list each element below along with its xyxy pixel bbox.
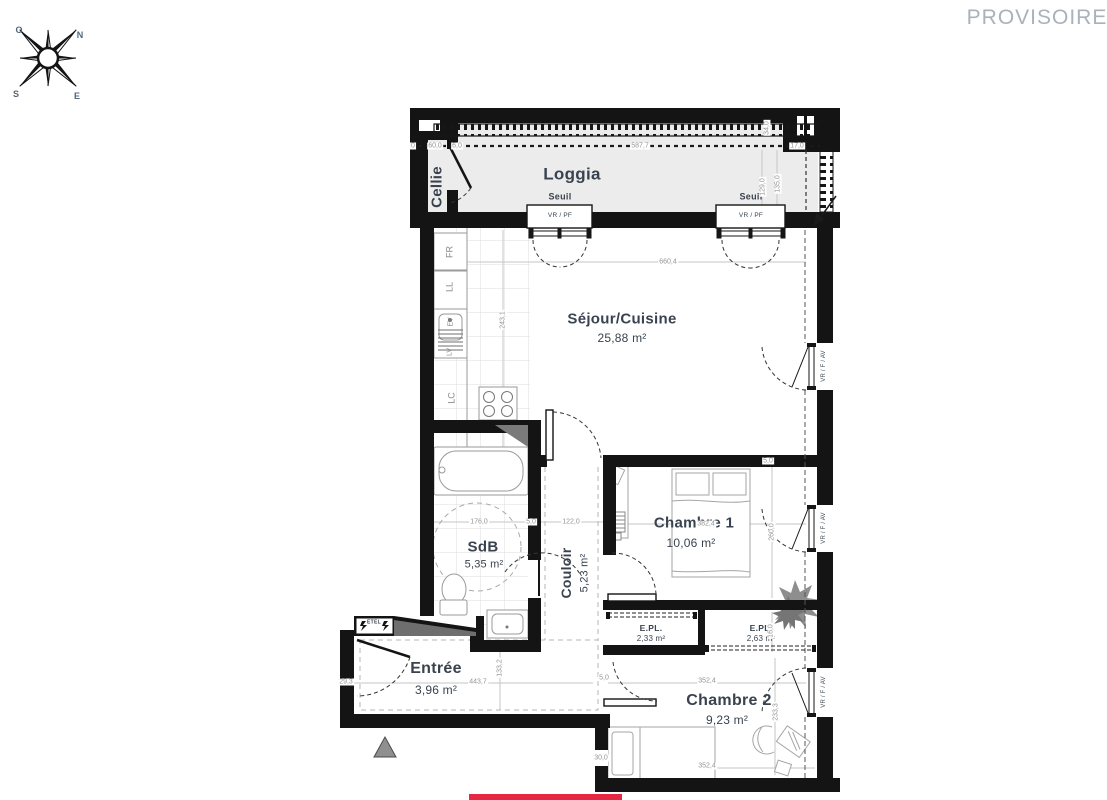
compass-label-east: E — [74, 91, 80, 101]
room-area-sejour: 25,88 m² — [598, 332, 647, 344]
room-name-cellier: Cellie — [430, 166, 445, 208]
dim-label: 0 — [410, 143, 416, 150]
vr-f-av-label-2: VR / F / AV — [821, 512, 827, 543]
floor-plan-drawing — [0, 0, 1107, 800]
dim-label: 135,0 — [775, 174, 782, 194]
dim-label: 260,0 — [769, 522, 776, 542]
sink-label: EV — [448, 316, 455, 327]
compass-label-north: N — [77, 30, 84, 40]
room-area-couloir: 5,23 m² — [580, 554, 591, 593]
room-name-couloir: Couloir — [559, 547, 573, 598]
bedroom2-furniture — [608, 726, 810, 780]
fridge-label: FR — [446, 245, 455, 259]
dim-label: 29,3 — [338, 679, 354, 686]
vr-pf-label-2: VR / PF — [739, 213, 763, 220]
room-area-placard1: 2,33 m² — [637, 635, 666, 643]
dim-label: 587,7 — [630, 143, 650, 150]
room-name-chambre1: Chambre 1 — [654, 516, 734, 531]
room-name-chambre2: Chambre 2 — [686, 693, 771, 709]
dim-label: 60,0 — [427, 143, 443, 150]
dishwasher-label: LV — [447, 347, 454, 357]
dim-label: 233,3 — [773, 702, 780, 722]
dim-label: 176,0 — [469, 519, 489, 526]
red-accent-bar — [469, 794, 622, 800]
room-area-sdb: 5,35 m² — [465, 560, 504, 571]
room-area-chambre2: 9,23 m² — [706, 714, 748, 726]
room-name-entree: Entrée — [410, 661, 462, 677]
floor-plan: PROVISOIRE O N S E Cellie Loggia Séjour/… — [0, 0, 1107, 800]
dim-label: 443,7 — [468, 679, 488, 686]
room-area-chambre1: 10,06 m² — [667, 537, 716, 549]
vr-pf-label-1: VR / PF — [548, 213, 572, 220]
dim-label: 5,0 — [598, 675, 610, 682]
dim-label: 133,2 — [497, 658, 504, 678]
seuil-label-1: Seuil — [548, 193, 571, 202]
compass-label-south: S — [13, 89, 19, 99]
chair — [753, 726, 774, 754]
vr-f-av-label-3: VR / F / AV — [821, 676, 827, 707]
room-name-sejour: Séjour/Cuisine — [567, 312, 676, 327]
room-name-loggia: Loggia — [543, 166, 601, 183]
dim-label: 129,0 — [760, 177, 767, 197]
lc-label: LC — [448, 391, 457, 405]
washing-machine-label: LL — [446, 281, 455, 293]
dim-label: 352,4 — [697, 763, 717, 770]
dim-label: 352,4 — [697, 678, 717, 685]
entrance-door — [357, 640, 410, 657]
room-name-sdb: SdB — [468, 540, 499, 555]
dim-label: 5,0 — [525, 519, 537, 526]
dim-label: 660,4 — [658, 259, 678, 266]
triangle-marker — [374, 737, 396, 757]
dim-label: 16,0 — [768, 623, 775, 639]
dim-label: 382,4 — [696, 521, 716, 528]
dim-label: 122,0 — [561, 519, 581, 526]
dim-label: 243,1 — [500, 310, 507, 330]
room-name-placard1: E.PL. — [640, 624, 663, 633]
dim-label: 30,0 — [593, 755, 609, 762]
room-area-entree: 3,96 m² — [415, 684, 457, 696]
etel-label: ETEL — [367, 621, 381, 626]
dim-label: 6,0 — [451, 143, 463, 150]
dim-label: 5,0 — [762, 458, 774, 465]
dim-label: 34,0 — [764, 120, 771, 136]
dim-label: 17,0 — [789, 143, 805, 150]
status-label: PROVISOIRE — [967, 6, 1107, 30]
vr-f-av-label-1: VR / F / AV — [821, 350, 827, 381]
compass-label-west: O — [15, 25, 22, 35]
